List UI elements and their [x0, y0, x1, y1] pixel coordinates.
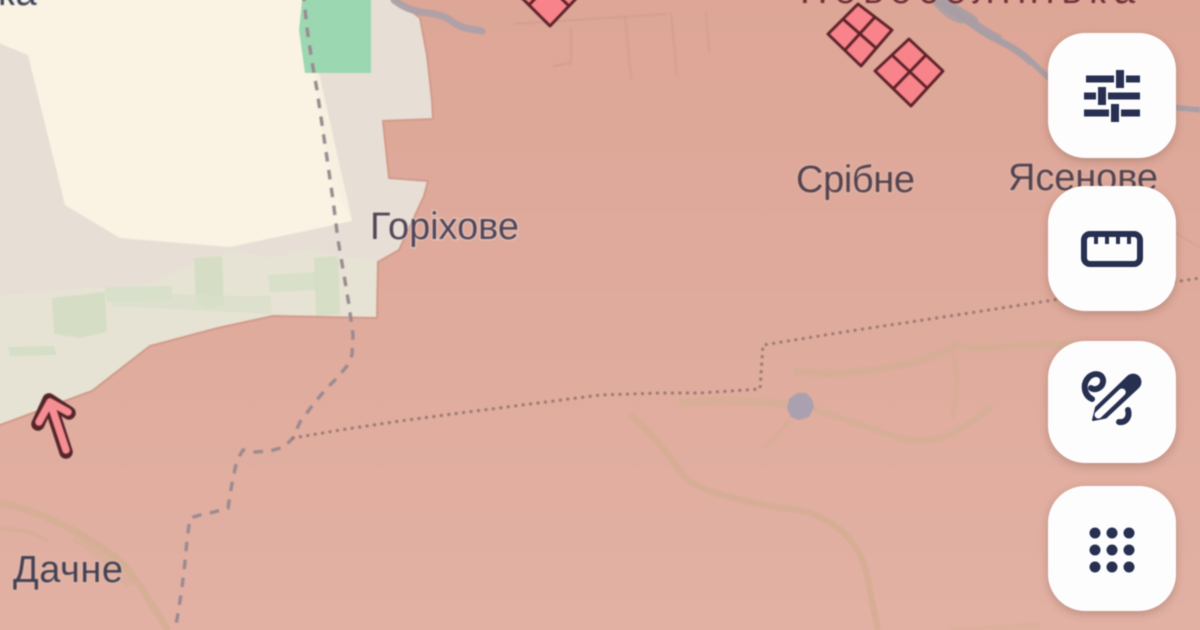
svg-text:Горіхове: Горіхове	[370, 206, 519, 248]
svg-text:Дачне: Дачне	[13, 549, 123, 591]
svg-text:ка: ка	[0, 0, 37, 14]
svg-text:Срібне: Срібне	[796, 159, 915, 201]
